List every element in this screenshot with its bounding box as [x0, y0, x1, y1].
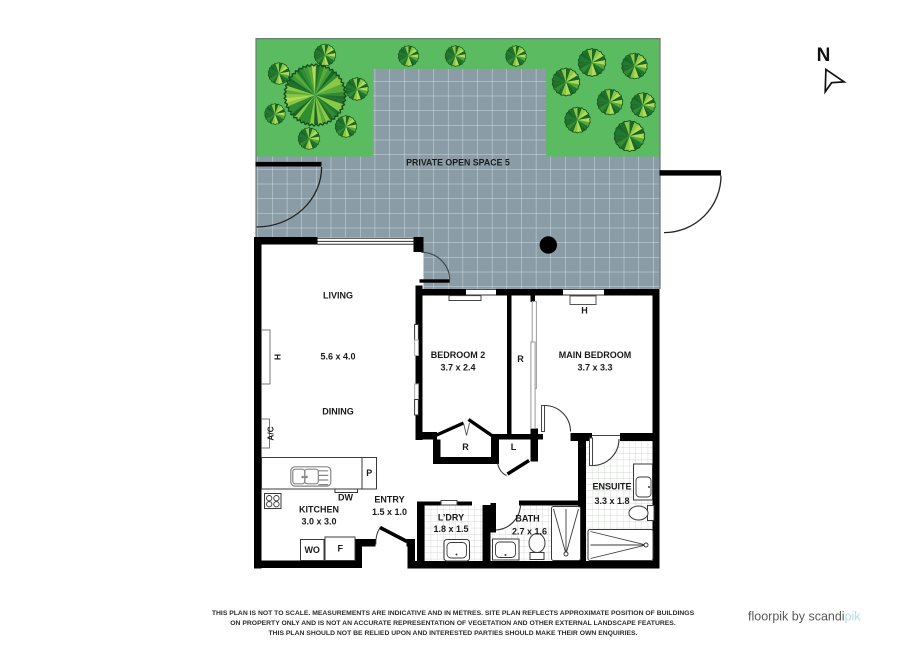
svg-text:5.6 x 4.0: 5.6 x 4.0	[320, 352, 355, 362]
svg-text:DINING: DINING	[322, 407, 354, 417]
svg-text:F: F	[337, 544, 343, 554]
svg-text:ON PROPERTY ONLY AND IS NOT AN: ON PROPERTY ONLY AND IS NOT AN ACCURATE …	[230, 620, 676, 627]
svg-text:R: R	[462, 442, 469, 452]
svg-text:WO: WO	[304, 545, 320, 555]
svg-text:1.8 x 1.5: 1.8 x 1.5	[433, 524, 468, 534]
svg-text:A/C: A/C	[267, 426, 276, 440]
svg-text:2.7 x 1.6: 2.7 x 1.6	[512, 527, 547, 537]
svg-text:LIVING: LIVING	[323, 291, 353, 301]
svg-text:R: R	[517, 354, 524, 364]
svg-text:BATH: BATH	[515, 514, 539, 524]
svg-text:floorpik by scandipik: floorpik by scandipik	[748, 610, 861, 624]
svg-text:THIS PLAN IS NOT TO SCALE. MEA: THIS PLAN IS NOT TO SCALE. MEASUREMENTS …	[212, 610, 695, 617]
svg-text:H: H	[581, 306, 588, 316]
svg-text:BEDROOM 2: BEDROOM 2	[431, 350, 486, 360]
svg-text:ENTRY: ENTRY	[374, 495, 404, 505]
svg-text:3.7 x 2.4: 3.7 x 2.4	[440, 363, 475, 373]
svg-text:KITCHEN: KITCHEN	[299, 504, 339, 514]
svg-text:MAIN BEDROOM: MAIN BEDROOM	[559, 350, 632, 360]
svg-text:L’DRY: L’DRY	[438, 513, 464, 523]
svg-text:N: N	[817, 45, 831, 66]
svg-text:3.0 x 3.0: 3.0 x 3.0	[301, 516, 336, 526]
svg-text:3.7 x 3.3: 3.7 x 3.3	[577, 363, 612, 373]
svg-text:L: L	[511, 442, 517, 452]
svg-text:THIS PLAN SHOULD NOT BE RELIED: THIS PLAN SHOULD NOT BE RELIED UPON AND …	[269, 630, 638, 637]
svg-text:3.3 x 1.8: 3.3 x 1.8	[594, 496, 629, 506]
svg-text:H: H	[273, 354, 283, 360]
svg-text:DW: DW	[338, 492, 353, 502]
svg-text:PRIVATE OPEN SPACE 5: PRIVATE OPEN SPACE 5	[406, 157, 510, 167]
svg-text:1.5 x 1.0: 1.5 x 1.0	[372, 507, 407, 517]
svg-text:P: P	[366, 468, 372, 478]
svg-text:ENSUITE: ENSUITE	[592, 482, 631, 492]
